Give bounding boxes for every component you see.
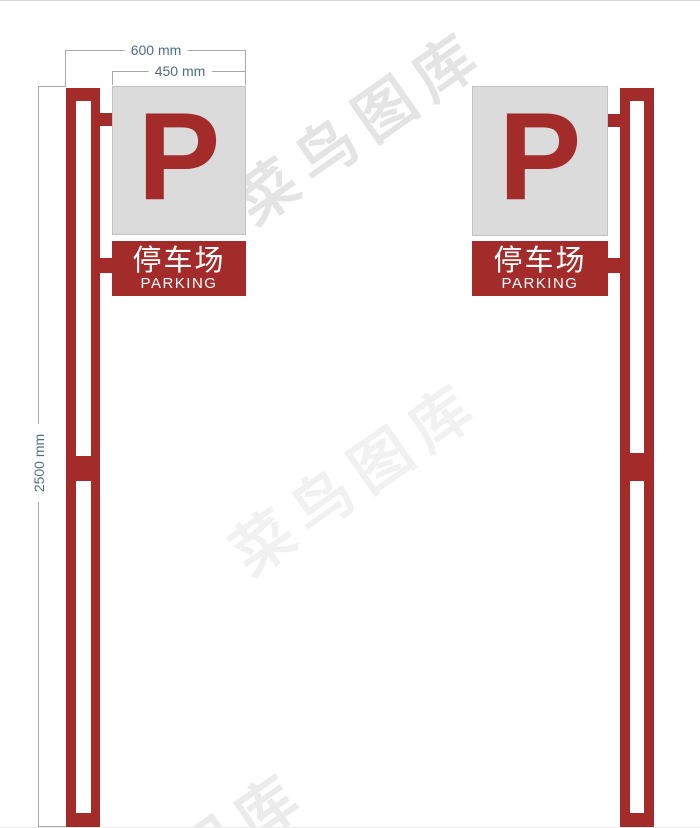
dim-450-label: 450 mm: [149, 63, 212, 79]
left-banner-cn-label: 停车场: [132, 245, 225, 275]
dim-600-extension-left: [65, 50, 66, 87]
right-parking-banner: 停车场 PARKING: [472, 241, 608, 296]
dim-2500-label: 2500 mm: [31, 424, 47, 502]
dim-right-extension-shared: [245, 50, 246, 85]
right-banner-cn-label: 停车场: [493, 245, 586, 275]
left-p-symbol: P: [138, 95, 221, 219]
right-p-symbol: P: [499, 95, 582, 219]
watermark-text: 菜鸟图库: [211, 356, 497, 592]
right-banner-en-label: PARKING: [502, 276, 579, 292]
left-pole-stripe-lower: [76, 481, 91, 813]
right-bracket-arm-top: [607, 114, 621, 127]
left-bracket-arm-bottom: [99, 258, 113, 273]
design-canvas: 菜鸟图库 菜鸟图库 菜鸟图库 600 mm 450 mm 2500 mm P 停…: [0, 0, 700, 828]
dim-2500-tick-top: [38, 86, 66, 87]
dim-450-extension-left: [112, 71, 113, 85]
watermark-text: 菜鸟图库: [215, 5, 501, 241]
left-parking-panel: P: [112, 86, 246, 235]
right-bracket-arm-bottom: [607, 258, 621, 273]
left-parking-banner: 停车场 PARKING: [112, 241, 246, 296]
right-parking-panel: P: [472, 86, 608, 236]
left-pole-stripe-upper: [76, 101, 91, 456]
dim-600-label: 600 mm: [125, 42, 188, 58]
left-banner-en-label: PARKING: [141, 276, 218, 292]
left-bracket-arm-top: [99, 113, 113, 126]
right-pole-stripe-lower: [630, 481, 644, 813]
right-pole-stripe-upper: [630, 101, 644, 453]
dim-2500-tick-bottom: [38, 826, 66, 827]
